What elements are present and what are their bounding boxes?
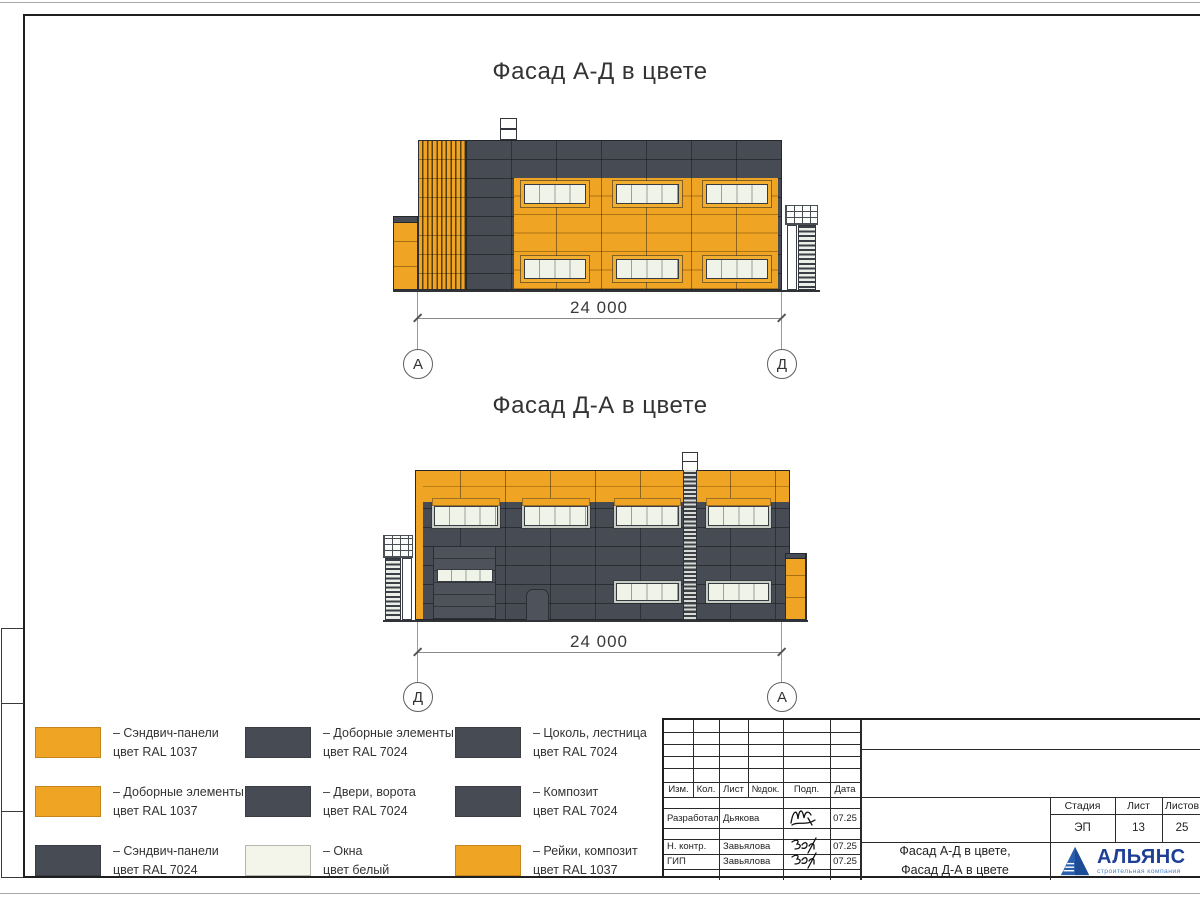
legend-label: – Сэндвич-панели xyxy=(113,842,219,860)
legend-swatch xyxy=(245,727,311,758)
external-stairs xyxy=(383,535,413,620)
left-annex xyxy=(393,216,418,290)
legend-swatch xyxy=(455,786,521,817)
entrance-door xyxy=(526,589,549,621)
facade-body xyxy=(466,140,782,290)
legend-label: цвет RAL 7024 xyxy=(323,743,454,761)
dimension-label: 24 000 xyxy=(417,298,781,318)
roof-hatch xyxy=(682,452,698,471)
facade-body xyxy=(415,470,790,620)
legend-item: – Окнацвет белый xyxy=(245,845,389,876)
legend-swatch xyxy=(455,845,521,876)
doc-title-line1: Фасад А-Д в цвете, xyxy=(899,842,1010,861)
legend-swatch xyxy=(35,786,101,817)
doc-title: Фасад А-Д в цвете, Фасад Д-А в цвете xyxy=(860,842,1050,880)
tb-name: Завьялова xyxy=(720,839,785,854)
tb-date: 07.25 xyxy=(830,854,860,869)
legend-label: – Доборные элементы xyxy=(113,783,244,801)
legend-label: цвет RAL 7024 xyxy=(533,802,618,820)
stairs-railing xyxy=(383,535,413,558)
axis-circle-a: А xyxy=(403,349,433,379)
axis-circle-d: Д xyxy=(403,682,433,712)
window-trim xyxy=(706,498,771,506)
gate-window xyxy=(437,569,493,582)
roof-hatch-divider xyxy=(501,128,516,130)
axis-circle-a: А xyxy=(767,682,797,712)
facade-d-a-drawing xyxy=(383,450,808,622)
legend-item: – Рейки, композитцвет RAL 1037 xyxy=(455,845,638,876)
tb-header-data: Дата xyxy=(830,782,860,797)
logo-subtitle: строительная компания xyxy=(1097,868,1186,875)
window xyxy=(524,184,586,204)
stage-value: ЭП xyxy=(1050,814,1115,842)
legend-item: – Сэндвич-панелицвет RAL 1037 xyxy=(35,727,219,758)
annex-top-band xyxy=(785,553,806,559)
legend-label: цвет RAL 1037 xyxy=(533,861,638,879)
legend-item: – Доборные элементыцвет RAL 1037 xyxy=(35,786,244,817)
tb-header-izm: Изм. xyxy=(664,782,693,797)
tb-role: Н. контр. xyxy=(664,839,722,854)
tb-header-podp: Подп. xyxy=(783,782,830,797)
margin-column xyxy=(1,628,23,878)
legend-swatch xyxy=(35,845,101,876)
facade1-title: Фасад А-Д в цвете xyxy=(0,58,1200,86)
tb-header-ndok: №док. xyxy=(748,782,783,797)
legend-label: – Окна xyxy=(323,842,389,860)
tb-date: 07.25 xyxy=(830,839,860,854)
legend-label: – Композит xyxy=(533,783,618,801)
dimension-line xyxy=(417,652,781,653)
window-trim xyxy=(614,498,681,506)
window xyxy=(524,506,588,526)
stairs-treads xyxy=(385,558,401,620)
legend-label: – Рейки, композит xyxy=(533,842,638,860)
facade2-title: Фасад Д-А в цвете xyxy=(0,392,1200,420)
tb-date: 07.25 xyxy=(830,808,860,828)
legend-label: – Двери, ворота xyxy=(323,783,416,801)
axis-letter: А xyxy=(777,689,787,706)
logo-triangle-icon xyxy=(1060,845,1090,877)
legend-item: – Сэндвич-панелицвет RAL 7024 xyxy=(35,845,219,876)
doc-title-line2: Фасад Д-А в цвете xyxy=(901,861,1009,880)
dimension-label: 24 000 xyxy=(417,632,781,652)
dimension-line xyxy=(417,318,781,319)
sheet-label: Лист xyxy=(1115,797,1162,814)
stairs-railing xyxy=(785,205,818,225)
legend-item: – Доборные элементыцвет RAL 7024 xyxy=(245,727,454,758)
right-annex xyxy=(785,553,807,620)
legend-label: цвет RAL 1037 xyxy=(113,743,219,761)
stairs-door xyxy=(402,558,412,620)
window xyxy=(708,583,769,601)
ground-line xyxy=(383,620,808,622)
tb-header-kol: Кол. xyxy=(693,782,719,797)
tb-header-list: Лист xyxy=(719,782,748,797)
sheets-label: Листов xyxy=(1162,797,1200,814)
roof-ladder xyxy=(683,470,697,620)
signature-icon xyxy=(788,851,824,869)
axis-letter: А xyxy=(413,356,423,373)
legend-item: – Композитцвет RAL 7024 xyxy=(455,786,618,817)
signature-icon xyxy=(788,805,820,829)
stairs-treads xyxy=(798,225,816,290)
facade-a-d-drawing xyxy=(393,118,820,292)
slat-screen xyxy=(418,140,466,290)
axis-letter: Д xyxy=(777,356,787,373)
drawing-sheet: { "colors": { "orange": "#F0A423", "dark… xyxy=(0,0,1200,900)
window xyxy=(708,506,769,526)
annex-top-band xyxy=(393,216,418,223)
tb-name: Завьялова xyxy=(720,854,785,869)
sectional-gate xyxy=(433,546,496,619)
sheet-bottom-edge xyxy=(0,893,1200,894)
window xyxy=(616,259,679,279)
stage-label: Стадия xyxy=(1050,797,1115,814)
legend-swatch xyxy=(245,845,311,876)
window xyxy=(616,583,679,601)
legend-swatch xyxy=(35,727,101,758)
legend-swatch xyxy=(245,786,311,817)
window-trim xyxy=(432,498,500,506)
legend-item: – Двери, воротацвет RAL 7024 xyxy=(245,786,416,817)
external-stairs xyxy=(785,205,818,290)
company-logo: АЛЬЯНС строительная компания xyxy=(1050,842,1200,880)
legend-label: цвет RAL 7024 xyxy=(533,743,647,761)
legend-label: цвет белый xyxy=(323,861,389,879)
window-trim xyxy=(522,498,590,506)
title-block: Изм. Кол. Лист №док. Подп. Дата Разработ… xyxy=(662,718,1200,878)
legend-label: – Сэндвич-панели xyxy=(113,724,219,742)
legend-label: – Доборные элементы xyxy=(323,724,454,742)
sheet-value: 13 xyxy=(1115,814,1162,842)
orange-edge-strip xyxy=(416,471,423,619)
sheet-top-edge xyxy=(0,2,1200,3)
legend-item: – Цоколь, лестницацвет RAL 7024 xyxy=(455,727,647,758)
window xyxy=(434,506,498,526)
window xyxy=(616,506,679,526)
window xyxy=(524,259,586,279)
roof-hatch-divider xyxy=(683,461,697,463)
logo-name: АЛЬЯНС xyxy=(1097,847,1186,867)
axis-letter: Д xyxy=(413,689,423,706)
legend-swatch xyxy=(455,727,521,758)
legend-label: цвет RAL 7024 xyxy=(323,802,416,820)
axis-circle-d: Д xyxy=(767,349,797,379)
tb-role: ГИП xyxy=(664,854,722,869)
margin-cell-divider xyxy=(2,811,24,812)
legend-label: цвет RAL 7024 xyxy=(113,861,219,879)
stairs-door xyxy=(787,225,797,290)
ground-line xyxy=(393,290,820,292)
tb-role: Разработал xyxy=(664,808,722,828)
window xyxy=(706,184,768,204)
legend-label: – Цоколь, лестница xyxy=(533,724,647,742)
legend-label: цвет RAL 1037 xyxy=(113,802,244,820)
roof-hatch xyxy=(500,118,517,140)
window xyxy=(616,184,679,204)
margin-cell-divider xyxy=(2,703,24,704)
window xyxy=(706,259,768,279)
sheets-value: 25 xyxy=(1162,814,1200,842)
extension-line xyxy=(781,292,782,349)
tb-name: Дьякова xyxy=(720,808,785,828)
